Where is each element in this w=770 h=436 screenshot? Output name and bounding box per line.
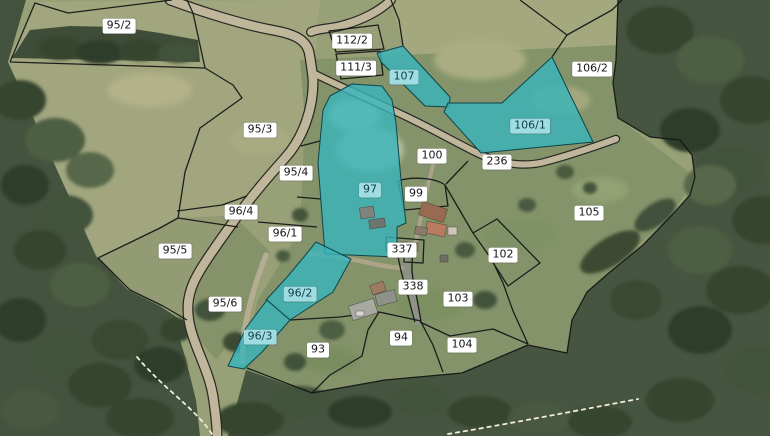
parcel-label-95-4[interactable]: 95/4 [280,166,313,181]
parcel-label-95-6[interactable]: 95/6 [209,297,242,312]
parcel-label-99[interactable]: 99 [405,187,427,202]
parcel-label-104[interactable]: 104 [448,338,477,353]
parcel-label-107[interactable]: 107 [390,70,419,85]
parcel-label-105[interactable]: 105 [575,206,604,221]
parcel-label-106-1[interactable]: 106/1 [510,119,550,134]
parcel-label-95-3[interactable]: 95/3 [244,123,277,138]
parcel-label-95-5[interactable]: 95/5 [159,244,192,259]
parcel-label-111-3[interactable]: 111/3 [336,61,376,76]
parcel-label-112-2[interactable]: 112/2 [332,34,372,49]
parcel-label-97[interactable]: 97 [359,183,381,198]
parcel-label-94[interactable]: 94 [390,331,412,346]
parcel-label-106-2[interactable]: 106/2 [572,62,612,77]
parcel-label-100[interactable]: 100 [418,149,447,164]
parcel-label-93[interactable]: 93 [307,343,329,358]
parcel-label-96-3[interactable]: 96/3 [244,330,277,345]
parcel-label-102[interactable]: 102 [489,248,518,263]
parcel-label-236[interactable]: 236 [483,155,512,170]
parcel-label-96-1[interactable]: 96/1 [269,227,302,242]
parcel-label-103[interactable]: 103 [444,292,473,307]
parcel-label-96-4[interactable]: 96/4 [225,205,258,220]
parcel-label-95-2[interactable]: 95/2 [103,19,136,34]
parcel-label-337[interactable]: 337 [388,243,417,258]
map-viewport[interactable]: 95/2112/2111/3107106/2106/195/310023695/… [0,0,770,436]
parcel-label-338[interactable]: 338 [399,280,428,295]
parcel-label-96-2[interactable]: 96/2 [284,287,317,302]
parcel-labels-layer: 95/2112/2111/3107106/2106/195/310023695/… [0,0,770,436]
